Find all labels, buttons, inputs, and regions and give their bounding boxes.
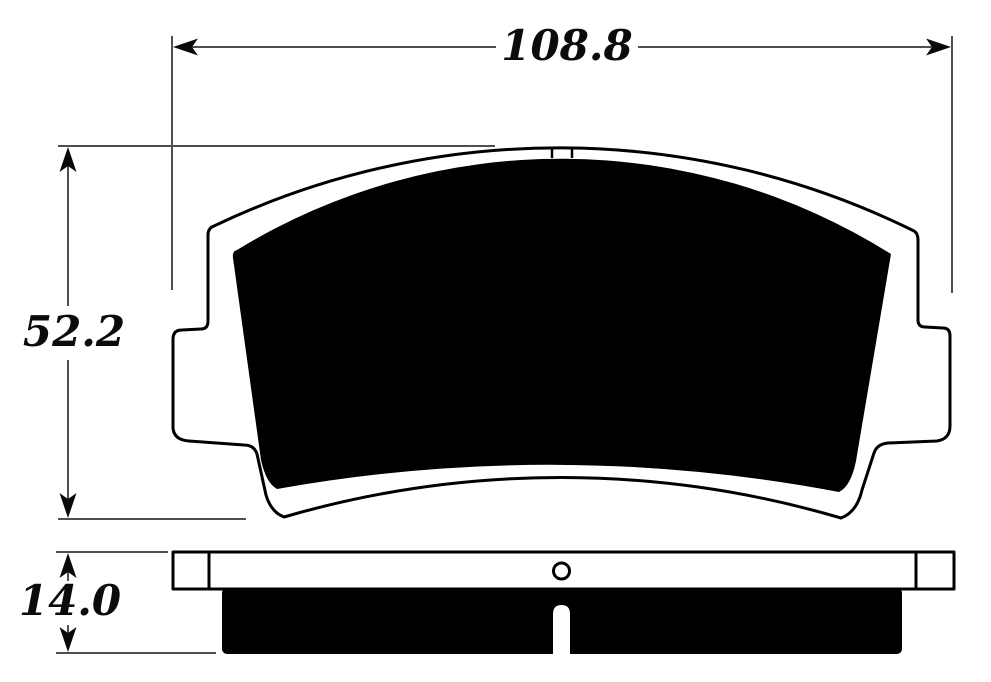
height-dimension-label: 52.2 [8,309,140,355]
friction-material-front [233,159,891,492]
thickness-dimension-label: 14.0 [4,578,136,624]
side-view [173,552,954,657]
center-slot [553,605,570,657]
brake-pad-drawing [0,0,991,682]
width-dimension-label: 108.8 [497,23,637,69]
mounting-hole [554,563,570,579]
brake-pad-drawing-canvas: 108.8 52.2 14.0 [0,0,991,682]
front-view [173,147,950,519]
